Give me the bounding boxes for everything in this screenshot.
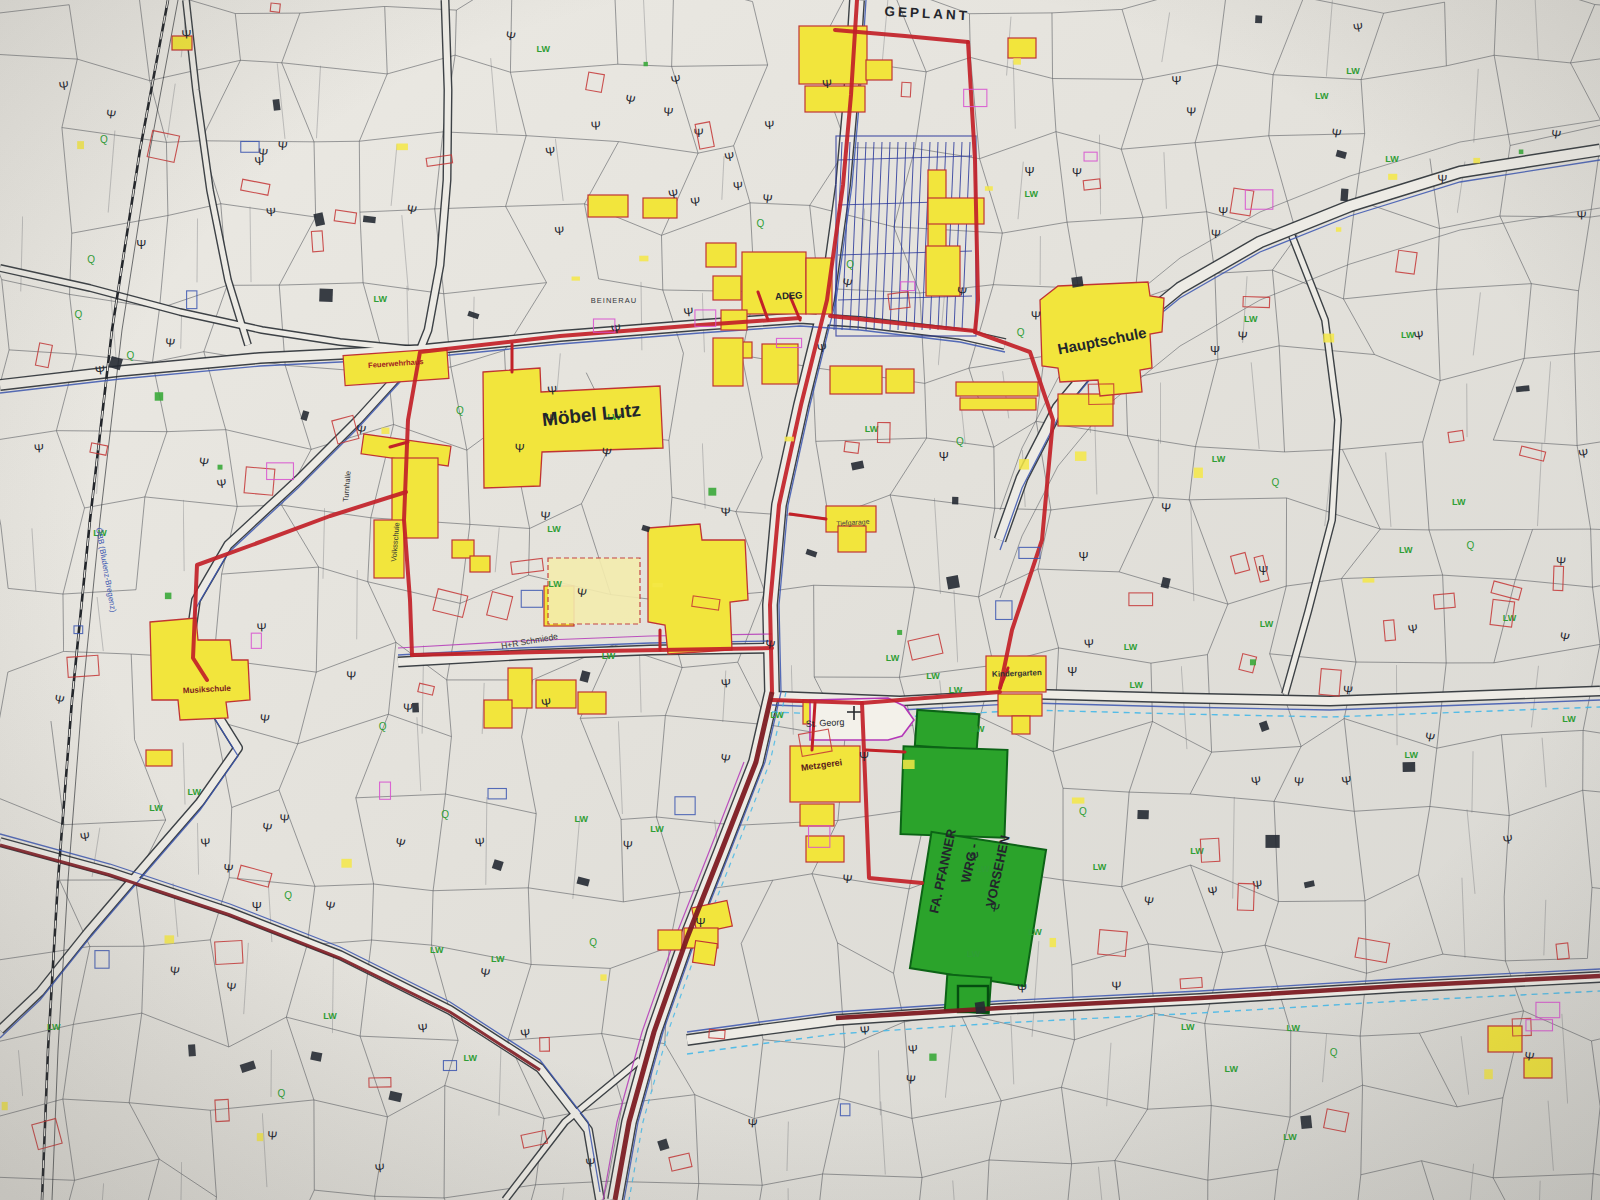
yellow-fleck bbox=[1473, 158, 1480, 163]
landuse-code-q: Q bbox=[127, 350, 135, 361]
green-fleck bbox=[1250, 659, 1256, 665]
yellow-fleck bbox=[1050, 938, 1056, 947]
existing-building bbox=[1071, 276, 1083, 287]
existing-building bbox=[1340, 188, 1348, 201]
highlighted-building bbox=[926, 246, 960, 296]
yellow-fleck bbox=[1336, 227, 1341, 232]
yellow-fleck bbox=[341, 859, 351, 868]
tree-icon: Ψ bbox=[403, 701, 414, 716]
tree-icon: Ψ bbox=[1237, 329, 1248, 344]
green-fleck bbox=[165, 593, 171, 599]
tree-icon: Ψ bbox=[105, 107, 117, 122]
landuse-code-lw: LW bbox=[1315, 91, 1329, 101]
highlighted-building bbox=[960, 398, 1036, 410]
landuse-code-q: Q bbox=[284, 890, 292, 901]
tree-icon: Ψ bbox=[259, 711, 271, 726]
landuse-code-lw: LW bbox=[949, 685, 963, 695]
highlighted-building bbox=[800, 804, 834, 826]
landuse-code-q: Q bbox=[441, 809, 449, 820]
highlighted-building bbox=[1488, 1026, 1522, 1052]
highlighted-building bbox=[830, 366, 882, 394]
landuse-code-lw: LW bbox=[1181, 1022, 1195, 1032]
tree-icon: Ψ bbox=[859, 1023, 870, 1038]
tree-icon: Ψ bbox=[1218, 204, 1229, 218]
tree-icon: Ψ bbox=[1186, 105, 1197, 119]
label-kindergarten: Kindergarten bbox=[992, 668, 1042, 679]
adeg-building bbox=[742, 252, 806, 314]
yellow-fleck bbox=[652, 583, 662, 587]
tree-icon: Ψ bbox=[216, 476, 228, 491]
yellow-fleck bbox=[396, 144, 408, 151]
landuse-code-lw: LW bbox=[575, 814, 589, 824]
highlighted-building bbox=[713, 338, 743, 386]
highlighted-building bbox=[956, 382, 1038, 396]
landuse-code-q: Q bbox=[756, 218, 764, 229]
yellow-fleck bbox=[985, 186, 993, 191]
tree-icon: Ψ bbox=[474, 835, 486, 850]
green-fleck bbox=[897, 630, 902, 635]
highlighted-building bbox=[1058, 394, 1113, 426]
highlighted-building bbox=[578, 692, 606, 714]
landuse-code-lw: LW bbox=[1025, 189, 1039, 199]
landuse-code-lw: LW bbox=[1283, 1132, 1297, 1142]
tree-icon: Ψ bbox=[747, 1116, 758, 1131]
highlighted-building bbox=[588, 195, 628, 217]
existing-building bbox=[1403, 762, 1416, 772]
landuse-code-q: Q bbox=[379, 721, 387, 732]
green-fleck bbox=[155, 392, 163, 400]
landuse-code-lw: LW bbox=[1346, 66, 1360, 76]
landuse-code-q: Q bbox=[1272, 477, 1280, 488]
yellow-fleck bbox=[1072, 798, 1084, 804]
tree-icon: Ψ bbox=[225, 980, 237, 995]
tree-icon: Ψ bbox=[859, 750, 869, 764]
existing-building bbox=[1300, 1115, 1312, 1129]
existing-building bbox=[273, 99, 281, 111]
map-canvas: ΨΨΨΨΨΨΨΨΨΨΨΨΨΨΨΨΨΨΨΨΨΨΨΨΨΨΨΨΨΨΨΨΨΨΨΨΨΨΨΨ… bbox=[0, 0, 1600, 1200]
tree-icon: Ψ bbox=[79, 829, 91, 844]
landuse-code-lw: LW bbox=[1028, 927, 1042, 937]
landuse-code-lw: LW bbox=[1129, 680, 1143, 690]
landuse-code-q: Q bbox=[956, 436, 964, 447]
landuse-code-lw: LW bbox=[547, 524, 561, 534]
landuse-code-lw: LW bbox=[47, 1022, 61, 1032]
tree-icon: Ψ bbox=[721, 505, 731, 519]
tree-icon: Ψ bbox=[1407, 621, 1419, 636]
tree-icon: Ψ bbox=[695, 916, 705, 930]
landuse-code-q: Q bbox=[456, 405, 464, 416]
tree-icon: Ψ bbox=[1577, 208, 1587, 222]
highlighted-building bbox=[452, 540, 474, 558]
tree-icon: Ψ bbox=[733, 179, 744, 194]
landuse-code-lw: LW bbox=[886, 653, 900, 663]
yellow-fleck bbox=[77, 141, 84, 149]
landuse-code-q: Q bbox=[1467, 540, 1475, 551]
landuse-code-lw: LW bbox=[1452, 497, 1466, 507]
tree-icon: Ψ bbox=[1161, 500, 1172, 515]
tree-icon: Ψ bbox=[223, 861, 234, 876]
landuse-code-q: Q bbox=[1330, 1047, 1338, 1058]
landuse-code-lw: LW bbox=[1401, 330, 1415, 340]
landuse-code-q: Q bbox=[1079, 806, 1087, 817]
label-adeg: ADEG bbox=[775, 289, 803, 301]
tree-icon: Ψ bbox=[842, 872, 853, 887]
tree-icon: Ψ bbox=[1111, 979, 1121, 993]
tree-icon: Ψ bbox=[58, 78, 70, 93]
tree-icon: Ψ bbox=[939, 450, 949, 464]
landuse-code-lw: LW bbox=[491, 954, 505, 964]
landuse-code-q: Q bbox=[1017, 327, 1025, 338]
yellow-fleck bbox=[903, 760, 915, 769]
yellow-fleck bbox=[785, 437, 794, 442]
tree-icon: Ψ bbox=[1210, 227, 1221, 242]
tree-icon: Ψ bbox=[554, 224, 565, 239]
landuse-code-lw: LW bbox=[430, 945, 444, 955]
tree-icon: Ψ bbox=[346, 669, 357, 683]
highlighted-building bbox=[886, 369, 914, 393]
tree-icon: Ψ bbox=[816, 341, 828, 356]
highlighted-building bbox=[806, 836, 844, 862]
tree-icon: Ψ bbox=[689, 194, 701, 209]
green-fleck bbox=[1519, 150, 1524, 155]
landuse-code-lw: LW bbox=[1093, 862, 1107, 872]
tree-icon: Ψ bbox=[720, 676, 731, 691]
landuse-code-lw: LW bbox=[1190, 846, 1204, 856]
tree-icon: Ψ bbox=[591, 118, 602, 133]
green-fleck bbox=[218, 465, 223, 470]
landuse-code-lw: LW bbox=[967, 949, 981, 959]
tree-icon: Ψ bbox=[544, 144, 556, 159]
yellow-fleck bbox=[381, 428, 389, 434]
highlighted-building bbox=[484, 700, 512, 728]
label-beinerau: BEINERAU bbox=[591, 296, 637, 305]
tree-icon: Ψ bbox=[94, 363, 106, 378]
landuse-code-lw: LW bbox=[1385, 154, 1399, 164]
landuse-code-lw: LW bbox=[650, 824, 664, 834]
landuse-code-lw: LW bbox=[976, 864, 990, 874]
highlighted-building bbox=[866, 60, 892, 80]
tree-icon: Ψ bbox=[1017, 981, 1028, 995]
landuse-code-lw: LW bbox=[1503, 613, 1517, 623]
tree-icon: Ψ bbox=[694, 126, 704, 140]
tree-icon: Ψ bbox=[277, 139, 288, 154]
landuse-code-q: Q bbox=[74, 309, 82, 320]
landuse-code-lw: LW bbox=[548, 579, 562, 589]
tree-icon: Ψ bbox=[1072, 165, 1083, 179]
highlighted-building bbox=[805, 86, 865, 112]
existing-building bbox=[319, 289, 333, 302]
tree-icon: Ψ bbox=[1031, 309, 1041, 323]
tree-icon: Ψ bbox=[1083, 636, 1094, 651]
tree-icon: Ψ bbox=[1171, 73, 1181, 87]
tree-icon: Ψ bbox=[520, 1026, 532, 1041]
landuse-code-lw: LW bbox=[971, 724, 985, 734]
yellow-fleck bbox=[1484, 1069, 1493, 1079]
landuse-code-lw: LW bbox=[1212, 454, 1226, 464]
landuse-code-q: Q bbox=[277, 1088, 285, 1099]
yellow-fleck bbox=[600, 974, 606, 980]
tree-icon: Ψ bbox=[1024, 165, 1034, 179]
yellow-fleck bbox=[1388, 174, 1397, 180]
tree-icon: Ψ bbox=[601, 445, 613, 460]
landuse-code-lw: LW bbox=[926, 671, 940, 681]
landuse-code-lw: LW bbox=[1244, 314, 1258, 324]
landuse-code-lw: LW bbox=[1399, 545, 1413, 555]
tree-icon: Ψ bbox=[1252, 877, 1264, 892]
landuse-code-lw: LW bbox=[149, 803, 163, 813]
tree-icon: Ψ bbox=[764, 118, 775, 133]
tree-icon: Ψ bbox=[1143, 894, 1155, 909]
tree-icon: Ψ bbox=[585, 1155, 596, 1170]
landuse-code-lw: LW bbox=[770, 710, 784, 720]
tree-icon: Ψ bbox=[576, 585, 588, 600]
yellow-fleck bbox=[1075, 451, 1086, 460]
tree-icon: Ψ bbox=[547, 383, 558, 398]
yellow-fleck bbox=[572, 277, 580, 281]
highlighted-building bbox=[1012, 716, 1030, 734]
pfanner-area-part bbox=[915, 710, 979, 750]
tree-icon: Ψ bbox=[622, 838, 633, 853]
landuse-code-lw: LW bbox=[374, 294, 388, 304]
tree-icon: Ψ bbox=[267, 1128, 278, 1143]
existing-building bbox=[975, 1001, 986, 1014]
tree-icon: Ψ bbox=[164, 335, 175, 350]
existing-building bbox=[188, 1044, 196, 1056]
metzgerei-building bbox=[790, 746, 860, 802]
tree-icon: Ψ bbox=[1210, 344, 1220, 358]
tree-icon: Ψ bbox=[905, 1072, 916, 1087]
tree-icon: Ψ bbox=[821, 77, 832, 92]
existing-building bbox=[363, 216, 376, 224]
yellow-fleck bbox=[1019, 459, 1029, 469]
yellow-fleck bbox=[165, 935, 175, 943]
landuse-code-q: Q bbox=[100, 134, 108, 145]
yellow-fleck bbox=[1323, 334, 1334, 343]
landuse-code-q: Q bbox=[846, 259, 854, 270]
highlighted-building bbox=[713, 276, 741, 300]
landuse-code-lw: LW bbox=[1260, 619, 1274, 629]
highlighted-building bbox=[762, 344, 798, 384]
heating-stub bbox=[866, 750, 905, 752]
tree-icon: Ψ bbox=[181, 27, 191, 41]
yellow-fleck bbox=[1013, 58, 1021, 64]
tree-icon: Ψ bbox=[663, 105, 674, 120]
tree-icon: Ψ bbox=[1250, 773, 1262, 788]
tree-icon: Ψ bbox=[907, 1042, 918, 1057]
tree-icon: Ψ bbox=[169, 963, 181, 978]
existing-building bbox=[412, 703, 419, 713]
tree-icon: Ψ bbox=[266, 205, 277, 220]
tree-icon: Ψ bbox=[683, 305, 694, 320]
tree-icon: Ψ bbox=[1079, 550, 1089, 564]
highlighted-building bbox=[146, 750, 172, 766]
landuse-code-lw: LW bbox=[463, 1053, 477, 1063]
landuse-code-lw: LW bbox=[602, 651, 616, 661]
pfanner-area-part bbox=[900, 746, 1007, 838]
existing-building bbox=[1137, 810, 1149, 819]
tree-icon: Ψ bbox=[1207, 884, 1219, 899]
green-fleck bbox=[929, 1054, 936, 1061]
landuse-code-q: Q bbox=[87, 254, 95, 265]
tree-icon: Ψ bbox=[1437, 172, 1447, 186]
landuse-code-lw: LW bbox=[1287, 1023, 1301, 1033]
yellow-fleck bbox=[1194, 468, 1203, 478]
existing-building bbox=[952, 497, 958, 505]
landuse-code-lw: LW bbox=[187, 787, 201, 797]
existing-building bbox=[1255, 15, 1262, 23]
existing-building bbox=[946, 575, 960, 589]
highlighted-building bbox=[1008, 38, 1036, 58]
yellow-fleck bbox=[257, 1133, 263, 1141]
tree-icon: Ψ bbox=[1342, 683, 1353, 698]
tree-icon: Ψ bbox=[200, 835, 211, 850]
highlighted-building bbox=[470, 556, 490, 572]
yellow-fleck bbox=[1363, 578, 1375, 582]
green-fleck bbox=[644, 62, 648, 66]
tree-icon: Ψ bbox=[374, 1161, 385, 1176]
tree-icon: Ψ bbox=[136, 238, 146, 252]
landuse-code-lw: LW bbox=[1124, 642, 1138, 652]
tree-icon: Ψ bbox=[1067, 665, 1077, 679]
tree-icon: Ψ bbox=[417, 1021, 428, 1036]
tree-icon: Ψ bbox=[254, 154, 265, 169]
label-st-georg: St. Georg bbox=[806, 717, 845, 729]
landuse-code-q: Q bbox=[589, 937, 597, 948]
tree-icon: Ψ bbox=[279, 812, 290, 827]
landuse-code-lw: LW bbox=[1405, 750, 1419, 760]
highlighted-building bbox=[706, 243, 736, 267]
tree-icon: Ψ bbox=[1293, 774, 1304, 789]
landuse-code-lw: LW bbox=[537, 44, 551, 54]
tree-icon: Ψ bbox=[762, 191, 774, 206]
landuse-code-lw: LW bbox=[323, 1011, 337, 1021]
yellow-fleck bbox=[639, 256, 648, 262]
tree-icon: Ψ bbox=[514, 441, 525, 455]
green-fleck bbox=[708, 488, 716, 496]
highlighted-building bbox=[693, 941, 718, 966]
pale-yellow-building bbox=[548, 558, 640, 624]
highlighted-building bbox=[838, 526, 866, 552]
highlighted-building bbox=[658, 930, 682, 950]
landuse-code-lw: LW bbox=[1224, 1064, 1238, 1074]
cadastral-map-photo: ΨΨΨΨΨΨΨΨΨΨΨΨΨΨΨΨΨΨΨΨΨΨΨΨΨΨΨΨΨΨΨΨΨΨΨΨΨΨΨΨ… bbox=[0, 0, 1600, 1200]
landuse-code-lw: LW bbox=[865, 424, 879, 434]
yellow-fleck bbox=[2, 1102, 8, 1110]
tree-icon: Ψ bbox=[33, 441, 44, 456]
existing-building bbox=[1265, 835, 1279, 848]
tree-icon: Ψ bbox=[252, 900, 262, 914]
landuse-code-lw: LW bbox=[1562, 714, 1576, 724]
tree-icon: Ψ bbox=[540, 509, 551, 524]
highlighted-building bbox=[998, 694, 1042, 716]
